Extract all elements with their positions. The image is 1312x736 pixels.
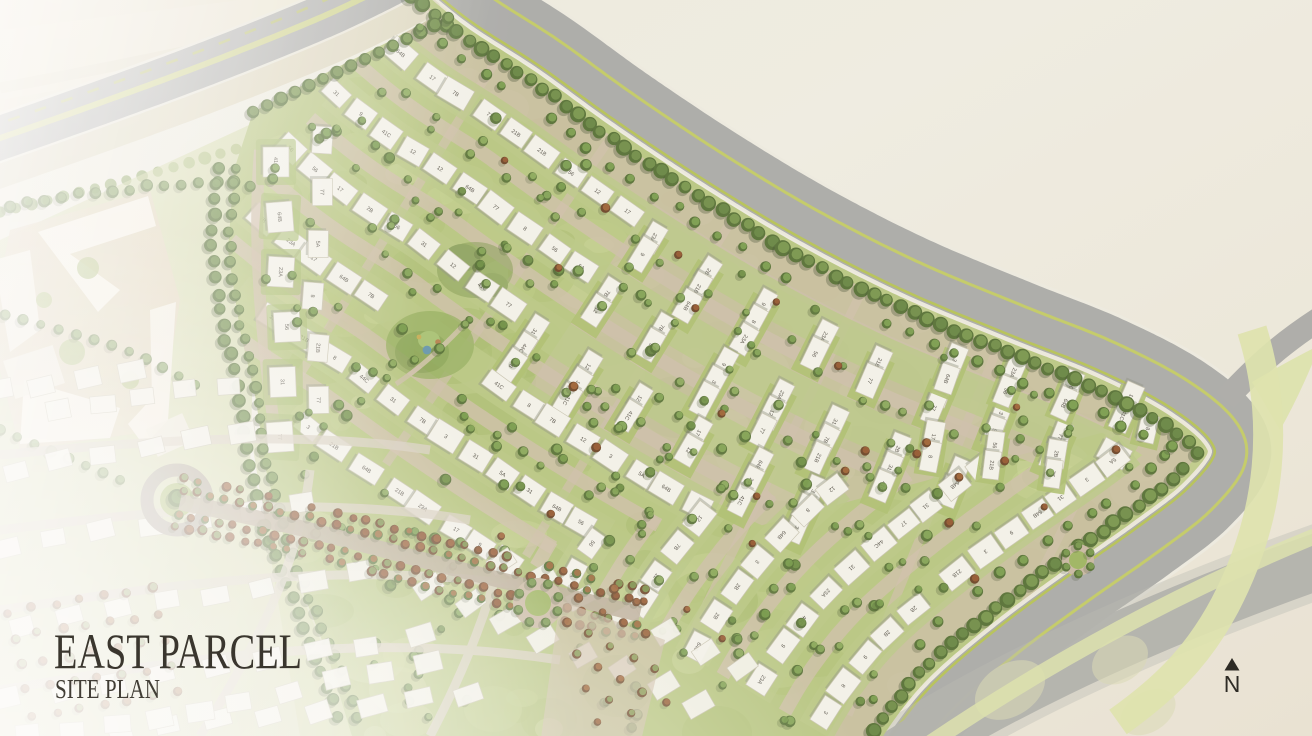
svg-text:EAST PARCEL: EAST PARCEL	[54, 623, 302, 679]
svg-text:N: N	[1224, 671, 1241, 697]
svg-text:SITE PLAN: SITE PLAN	[55, 674, 160, 704]
